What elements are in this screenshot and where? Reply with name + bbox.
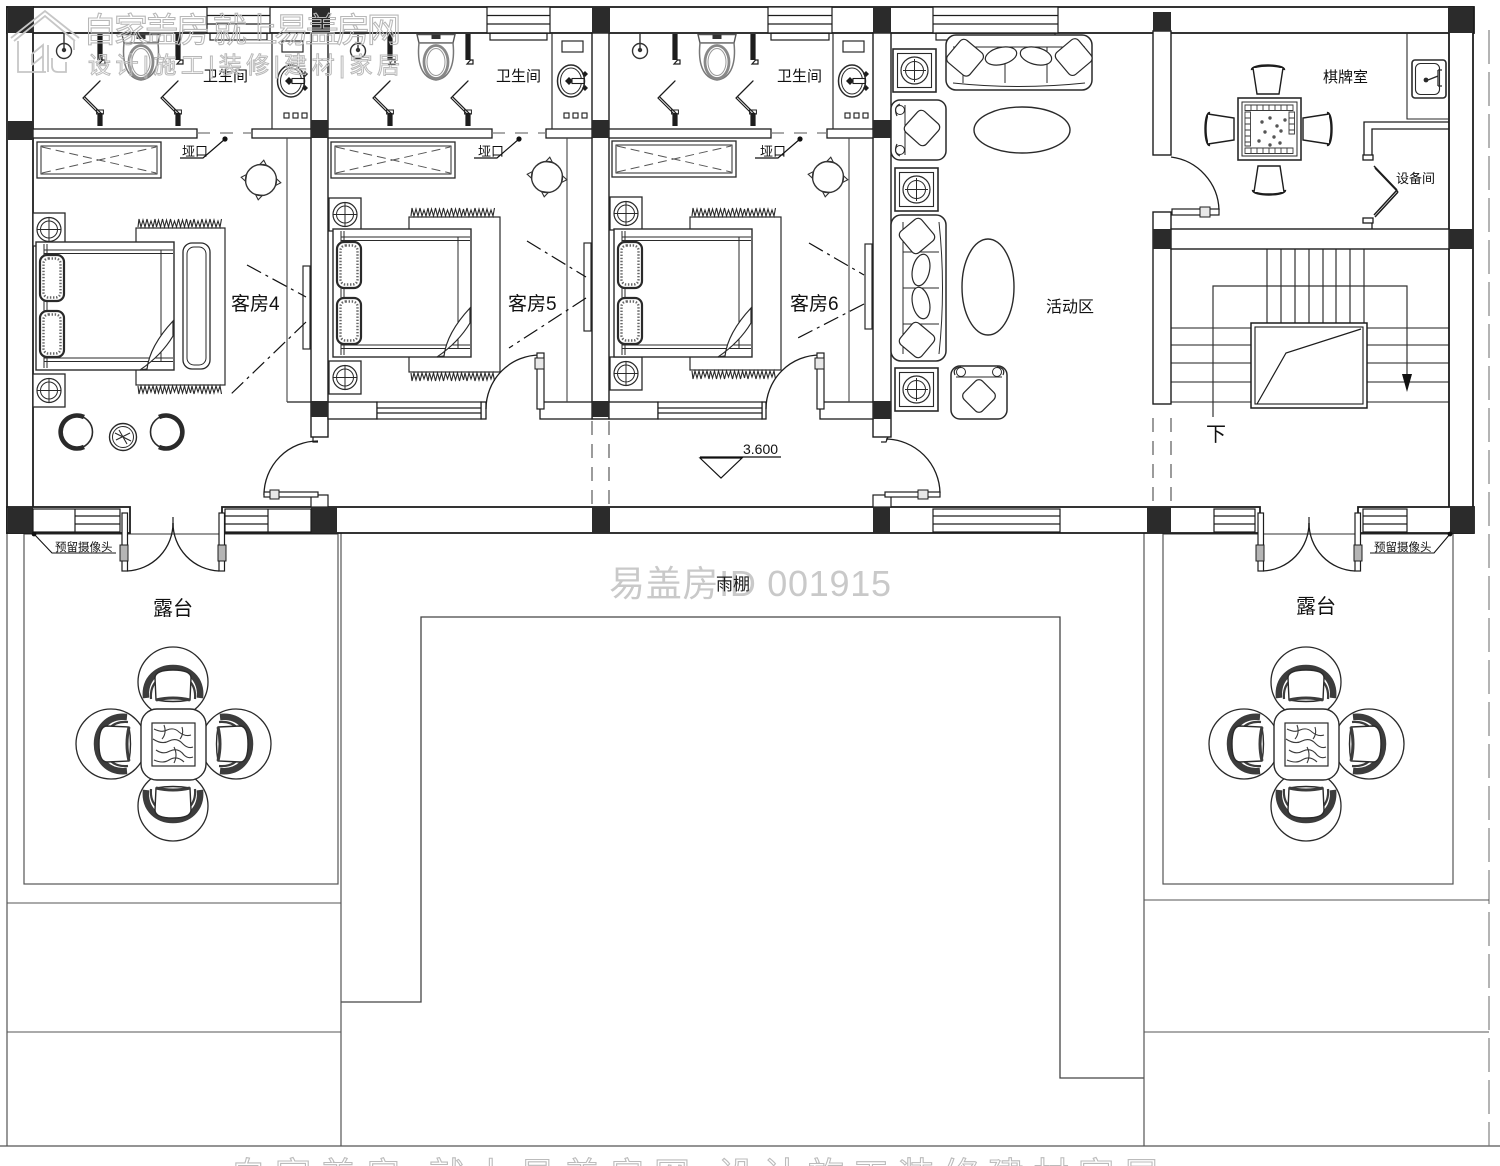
- svg-text:卫生间: 卫生间: [496, 68, 541, 85]
- svg-text:设备间: 设备间: [1396, 171, 1435, 186]
- svg-text:雨棚: 雨棚: [716, 575, 750, 594]
- svg-text:客房4: 客房4: [231, 293, 280, 315]
- svg-text:自家盖房 就上易盖房网: 自家盖房 就上易盖房网: [83, 12, 401, 50]
- svg-text:垭口: 垭口: [760, 144, 786, 159]
- svg-text:客房6: 客房6: [790, 293, 839, 315]
- svg-text:垭口: 垭口: [182, 144, 208, 159]
- svg-text:活动区: 活动区: [1046, 298, 1094, 316]
- svg-text:下: 下: [1206, 424, 1226, 446]
- svg-text:露台: 露台: [1296, 595, 1336, 618]
- svg-text:预留摄像头: 预留摄像头: [1374, 540, 1432, 554]
- svg-text:3.600: 3.600: [743, 441, 778, 457]
- svg-text:自家盖房 就上易盖房网 设计施工装修建材家居: 自家盖房 就上易盖房网 设计施工装修建材家居: [230, 1155, 1168, 1166]
- svg-text:预留摄像头: 预留摄像头: [55, 540, 113, 554]
- svg-text:露台: 露台: [153, 597, 193, 620]
- svg-text:垭口: 垭口: [478, 144, 504, 159]
- svg-text:易盖房ID 001915: 易盖房ID 001915: [609, 563, 891, 604]
- svg-text:卫生间: 卫生间: [777, 68, 822, 85]
- svg-text:客房5: 客房5: [508, 293, 557, 315]
- svg-text:棋牌室: 棋牌室: [1323, 69, 1368, 86]
